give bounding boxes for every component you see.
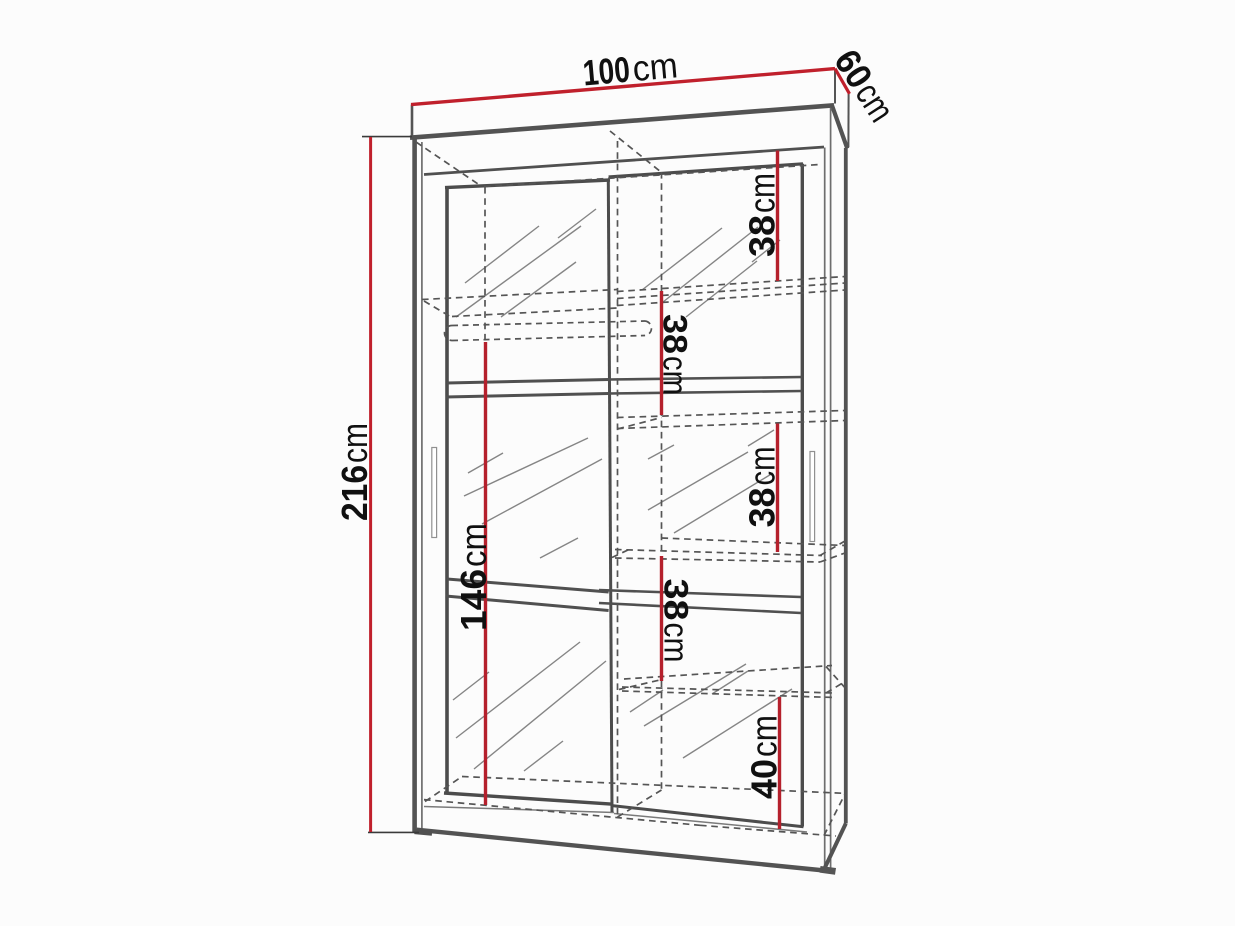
svg-text:38cm: 38cm [742, 173, 783, 257]
svg-text:40cm: 40cm [744, 715, 785, 799]
svg-text:146cm: 146cm [453, 523, 494, 631]
svg-text:216cm: 216cm [334, 423, 375, 521]
